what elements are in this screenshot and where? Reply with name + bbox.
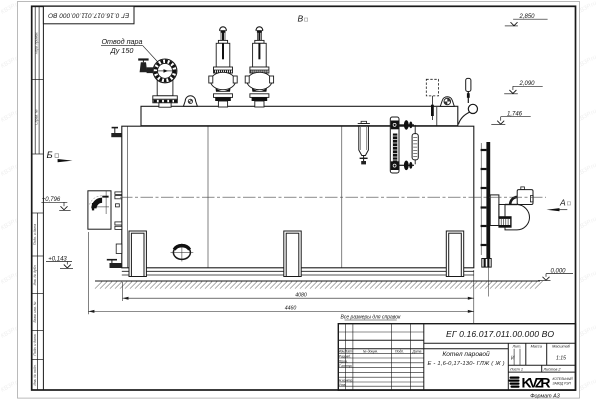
svg-text:Подп.: Подп.: [395, 349, 404, 353]
svg-text:Перв. примен.: Перв. примен.: [34, 32, 38, 55]
svg-text:Б: Б: [47, 150, 53, 161]
svg-text:Изм.Лист: Изм.Лист: [339, 349, 353, 353]
svg-text:Пров.: Пров.: [339, 359, 348, 363]
svg-text:Н.контр.: Н.контр.: [339, 379, 353, 383]
svg-text:А: А: [559, 198, 566, 208]
svg-text:ЗАВОД РЭП: ЗАВОД РЭП: [553, 382, 572, 386]
svg-text:Подп. и дата: Подп. и дата: [33, 224, 37, 245]
svg-text:№ докум.: № докум.: [363, 349, 378, 353]
svg-text:Все размеры для справок: Все размеры для справок: [341, 314, 402, 320]
svg-text:1,746: 1,746: [507, 112, 523, 118]
svg-text:ЕГ 0.16.017.011.00.000 ВО: ЕГ 0.16.017.011.00.000 ВО: [446, 329, 554, 339]
svg-text:0,000: 0,000: [550, 268, 566, 274]
svg-text:Инв. № подл.: Инв. № подл.: [33, 364, 37, 385]
svg-text:Лист 1: Лист 1: [509, 367, 523, 371]
svg-text:И: И: [511, 356, 515, 362]
svg-text:Ду 150: Ду 150: [110, 46, 134, 55]
svg-text:4080: 4080: [295, 292, 307, 298]
svg-text:Котел паровой: Котел паровой: [442, 350, 490, 358]
svg-text:В: В: [298, 14, 304, 24]
svg-text:Е - 1,6-0,17-130- ГЛЖ ( Ж ): Е - 1,6-0,17-130- ГЛЖ ( Ж ): [428, 361, 505, 367]
svg-text:2,090: 2,090: [518, 81, 535, 87]
svg-text:Подп. и дата: Подп. и дата: [33, 334, 37, 355]
svg-text:1:15: 1:15: [556, 356, 566, 362]
svg-text:КОТЕЛЬНЫЙ: КОТЕЛЬНЫЙ: [553, 377, 574, 381]
svg-text:Разраб.: Разраб.: [339, 354, 351, 358]
svg-text:4460: 4460: [285, 306, 297, 312]
svg-text:+0,796: +0,796: [42, 197, 61, 203]
svg-text:Т.контр.: Т.контр.: [339, 364, 353, 368]
svg-text:Отвод пара: Отвод пара: [101, 37, 142, 46]
svg-text:Инв. № дубл.: Инв. № дубл.: [33, 265, 37, 286]
svg-text:ЕГ 0.16.017.011.00.000 ВО: ЕГ 0.16.017.011.00.000 ВО: [48, 12, 129, 19]
svg-text:Формат А3: Формат А3: [530, 394, 560, 400]
svg-text:Взам. инв. №: Взам. инв. №: [33, 301, 37, 322]
svg-text:Справ. №: Справ. №: [34, 109, 38, 125]
svg-text:Дата: Дата: [412, 349, 422, 353]
svg-text:Масштаб: Масштаб: [552, 344, 571, 348]
svg-text:Утв.: Утв.: [339, 383, 347, 387]
svg-text:Масса: Масса: [531, 344, 542, 348]
svg-text:+0,143: +0,143: [48, 256, 67, 262]
svg-text:Листов 2: Листов 2: [543, 367, 562, 371]
svg-text:Лит.: Лит.: [512, 344, 522, 348]
svg-text:KVZR: KVZR: [522, 375, 551, 391]
svg-text:2,850: 2,850: [518, 14, 535, 20]
